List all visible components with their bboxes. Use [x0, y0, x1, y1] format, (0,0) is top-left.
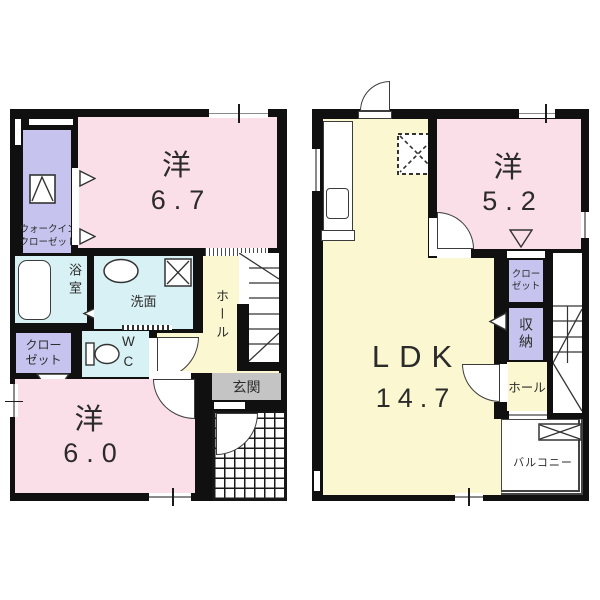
hall2-label: ホール: [508, 377, 546, 396]
balcony-label: バルコニー: [503, 454, 583, 470]
room-size-text: 5.2: [474, 187, 544, 215]
window-line: [149, 496, 191, 498]
window-line: [519, 113, 555, 115]
window: [10, 384, 18, 417]
window: [312, 149, 320, 191]
bedroom3-door-gap: [437, 249, 471, 258]
floor2-plan: LDK 14.7 洋 5.2: [312, 109, 589, 501]
window-tick: [238, 104, 240, 123]
wc-label-line2: C: [122, 352, 135, 372]
room-kind-text: 洋: [74, 405, 105, 435]
stairs-icon: [553, 253, 582, 413]
wall-gap: [15, 119, 21, 145]
wc-label: W C: [122, 332, 135, 371]
window-line: [315, 149, 317, 191]
storage-door-arrow-icon: [488, 312, 507, 331]
walk-in-closet: ウォークイン クローゼット: [23, 130, 71, 253]
sink-icon: [102, 258, 140, 285]
bathtub-icon: [18, 260, 51, 320]
room-size-text: 6.7: [143, 186, 213, 214]
room-western-6-0-label: 洋 6.0: [15, 379, 165, 493]
staircase2: [553, 253, 582, 413]
entrance-label: 玄関: [233, 377, 261, 397]
entry-door-arc: [360, 81, 390, 111]
window: [209, 109, 268, 118]
storage-label: 収納: [516, 317, 536, 351]
closet2-label-line1: クロー: [512, 269, 541, 281]
toilet-room: W C: [82, 331, 149, 377]
wall-below-stairs: [237, 362, 279, 371]
window-line: [509, 414, 547, 416]
floorplan-canvas: 洋 6.7 ウォークイン クローゼット: [0, 0, 600, 600]
window: [519, 109, 555, 118]
toilet-icon: [85, 340, 121, 368]
door-arrow-icon: [79, 170, 96, 187]
front-door-leaf: [214, 402, 245, 409]
room-kind-text: 洋: [493, 153, 524, 183]
washroom-label: 洗面: [94, 294, 193, 310]
room-size-text: 6.0: [55, 439, 125, 467]
room-western-6-7-label: 洋 6.7: [143, 151, 213, 214]
closet-label-line1: クロー: [25, 338, 61, 353]
floor1-plan: 洋 6.7 ウォークイン クローゼット: [10, 109, 287, 501]
room-kind-text: LDK: [362, 341, 462, 374]
room-western-6-7: 洋 6.7: [78, 117, 277, 248]
hall2-door-leaf: [500, 364, 508, 402]
closet-label: クロー ゼット: [25, 338, 61, 368]
kitchen-sink: [326, 188, 349, 219]
window-tick: [5, 401, 23, 403]
window: [149, 493, 191, 501]
wic-door-track: [72, 168, 79, 245]
washing-machine-space-icon: [538, 423, 582, 441]
closet-door-arrow-icon: [509, 229, 533, 249]
window-tick: [468, 488, 470, 506]
wall-ldk-hall: [494, 258, 507, 364]
closet: クロー ゼット: [16, 333, 71, 373]
bathroom: 浴室: [15, 256, 87, 323]
door-arrow-icon: [79, 228, 96, 245]
closet-label-line2: ゼット: [25, 353, 61, 368]
bathroom-label: 浴室: [65, 263, 84, 299]
bedroom3-door-leaf: [429, 218, 437, 256]
wall-ldk-hall2: [494, 402, 507, 419]
window-line: [584, 212, 586, 238]
wic-window-icon: [29, 174, 56, 204]
hall2: ホール: [507, 362, 547, 411]
bedroom2-door-gap: [153, 371, 191, 379]
kitchen-counter: [323, 121, 353, 235]
kitchen-counter-end: [321, 230, 355, 241]
hall-label: ホール: [212, 289, 231, 359]
closet2: クロー ゼット: [509, 260, 543, 302]
wic-label-line1: ウォークイン: [19, 224, 77, 236]
storage: 収納: [509, 308, 543, 360]
washing-machine-icon: [164, 258, 192, 287]
window: [455, 493, 483, 501]
stair-wall-stub: [237, 304, 249, 362]
balcony-door: [509, 411, 547, 419]
wic-label-line2: クローゼット: [19, 237, 77, 249]
wc-label-line1: W: [122, 332, 135, 352]
closet-pole: [29, 119, 73, 125]
window-tick: [172, 488, 174, 506]
room-kind-text: 洋: [162, 151, 193, 181]
closet2-label-line2: ゼット: [512, 281, 541, 293]
window-tick: [545, 104, 547, 123]
wall-gap: [314, 471, 320, 491]
room-size-text: 14.7: [368, 384, 457, 412]
entrance: 玄関: [212, 373, 281, 400]
washroom: 洗面: [94, 256, 193, 329]
window: [581, 212, 589, 238]
entry-door-leaf: [358, 111, 392, 119]
wic-label: ウォークイン クローゼット: [19, 224, 77, 249]
room-western-5-2-label: 洋 5.2: [474, 153, 544, 216]
closet2-door-gap: [507, 251, 545, 258]
door-track-dots: [122, 325, 172, 330]
closet2-label: クロー ゼット: [512, 269, 541, 294]
